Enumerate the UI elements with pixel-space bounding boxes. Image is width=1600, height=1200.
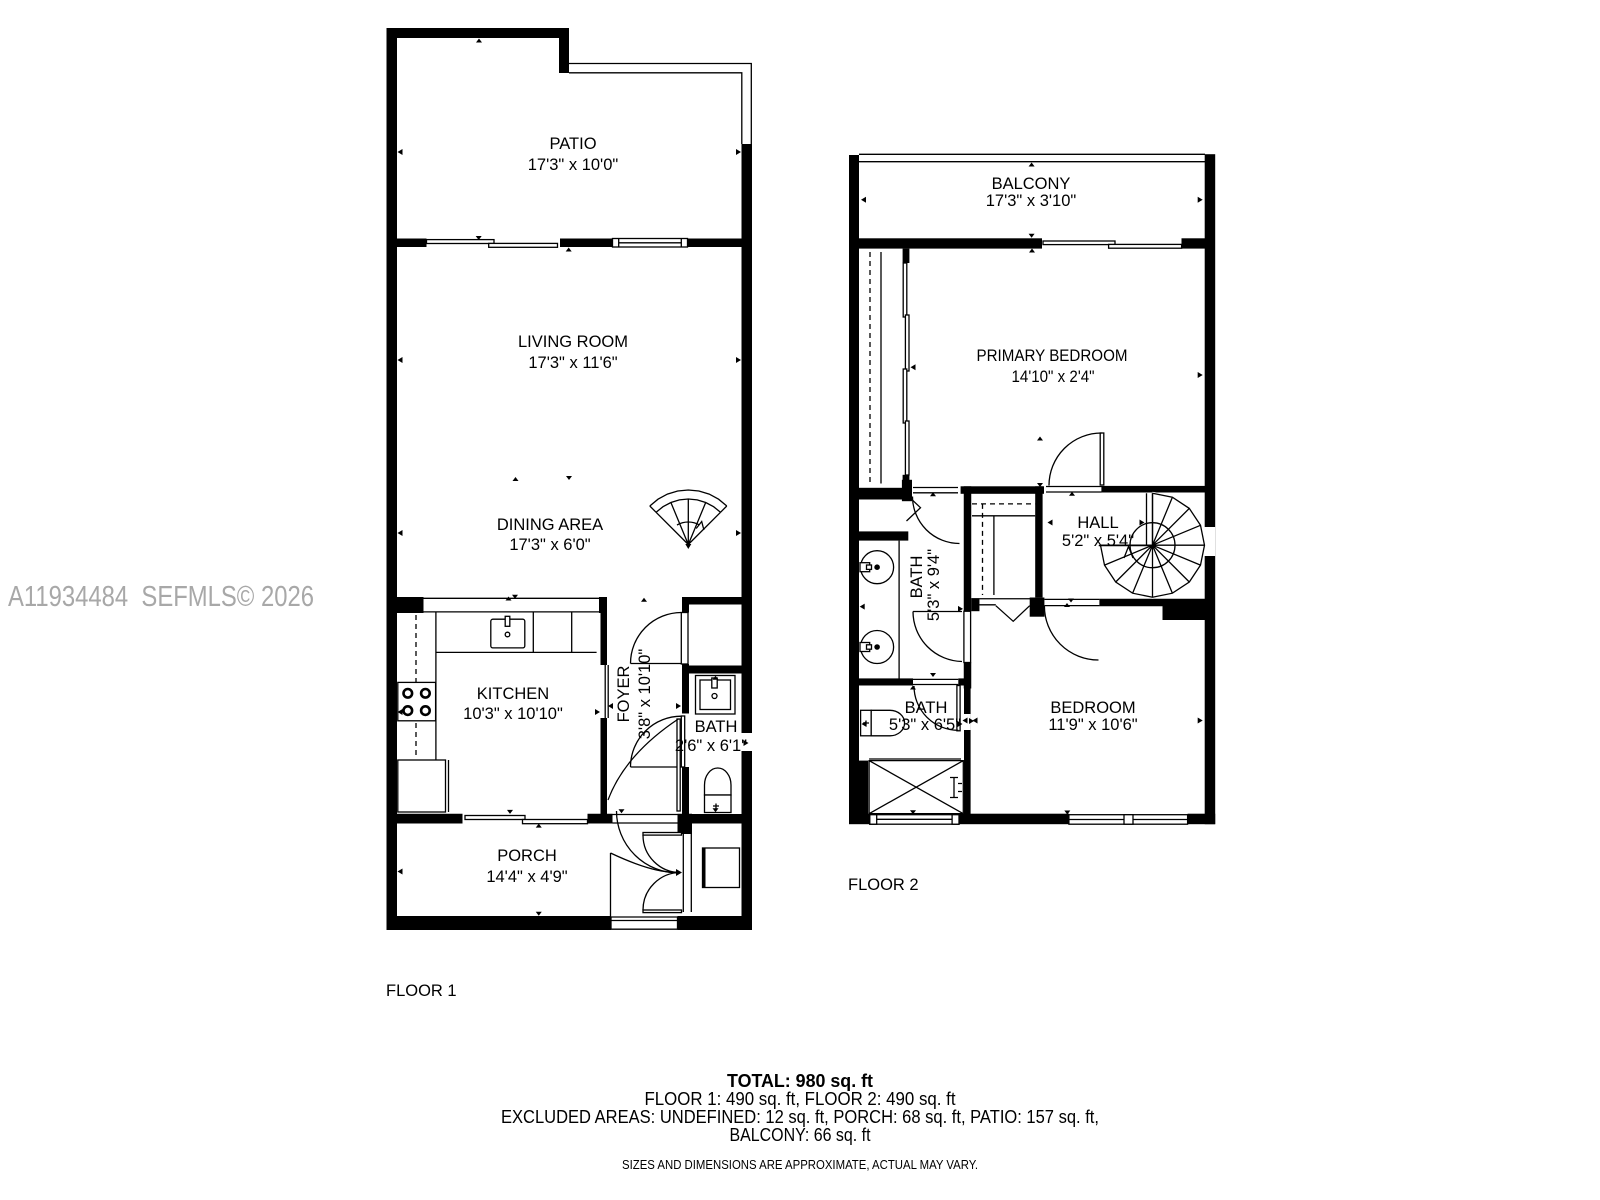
svg-text:PRIMARY BEDROOM: PRIMARY BEDROOM bbox=[977, 347, 1128, 365]
svg-text:3'8" x 10'10": 3'8" x 10'10" bbox=[636, 649, 654, 740]
svg-text:10'3" x 10'10": 10'3" x 10'10" bbox=[463, 705, 563, 723]
svg-text:14'10" x 2'4": 14'10" x 2'4" bbox=[1012, 368, 1095, 386]
svg-text:PORCH: PORCH bbox=[497, 847, 557, 865]
svg-text:5'2" x 5'4": 5'2" x 5'4" bbox=[1062, 532, 1134, 550]
svg-text:PATIO: PATIO bbox=[549, 135, 596, 153]
svg-text:FLOOR 1: 490 sq. ft, FLOOR 2:: FLOOR 1: 490 sq. ft, FLOOR 2: 490 sq. ft bbox=[645, 1089, 956, 1109]
svg-text:BALCONY: BALCONY bbox=[992, 175, 1071, 193]
svg-text:17'3" x 3'10": 17'3" x 3'10" bbox=[986, 192, 1077, 210]
svg-text:FLOOR 1: FLOOR 1 bbox=[386, 982, 457, 1000]
svg-text:HALL: HALL bbox=[1077, 514, 1118, 532]
svg-text:14'4" x 4'9": 14'4" x 4'9" bbox=[486, 868, 567, 886]
svg-text:LIVING ROOM: LIVING ROOM bbox=[518, 333, 628, 351]
svg-text:SIZES AND DIMENSIONS ARE APPRO: SIZES AND DIMENSIONS ARE APPROXIMATE, AC… bbox=[622, 1157, 978, 1172]
svg-text:EXCLUDED AREAS: UNDEFINED: 12: EXCLUDED AREAS: UNDEFINED: 12 sq. ft, PO… bbox=[501, 1107, 1099, 1127]
svg-text:17'3" x 10'0": 17'3" x 10'0" bbox=[528, 156, 619, 174]
svg-text:BATH: BATH bbox=[905, 699, 948, 717]
svg-text:17'3" x 6'0": 17'3" x 6'0" bbox=[509, 536, 590, 554]
svg-text:BALCONY: 66 sq. ft: BALCONY: 66 sq. ft bbox=[730, 1125, 871, 1145]
svg-text:BEDROOM: BEDROOM bbox=[1050, 699, 1135, 717]
svg-text:FOYER: FOYER bbox=[615, 665, 633, 722]
svg-text:BATH: BATH bbox=[695, 718, 738, 736]
svg-text:TOTAL: 980 sq. ft: TOTAL: 980 sq. ft bbox=[727, 1071, 873, 1091]
svg-text:17'3" x 11'6": 17'3" x 11'6" bbox=[528, 354, 617, 372]
svg-text:KITCHEN: KITCHEN bbox=[477, 685, 549, 703]
svg-text:BATH: BATH bbox=[908, 556, 926, 599]
svg-text:FLOOR 2: FLOOR 2 bbox=[848, 876, 919, 894]
svg-text:DINING AREA: DINING AREA bbox=[497, 516, 603, 534]
svg-text:5'3" x 6'5": 5'3" x 6'5" bbox=[889, 716, 961, 734]
svg-text:5'3" x 9'4": 5'3" x 9'4" bbox=[925, 549, 943, 621]
svg-text:2'6" x 6'1": 2'6" x 6'1" bbox=[675, 737, 747, 755]
svg-text:A11934484 SEFMLS© 2026: A11934484 SEFMLS© 2026 bbox=[8, 581, 314, 613]
svg-text:11'9" x 10'6": 11'9" x 10'6" bbox=[1048, 716, 1137, 734]
